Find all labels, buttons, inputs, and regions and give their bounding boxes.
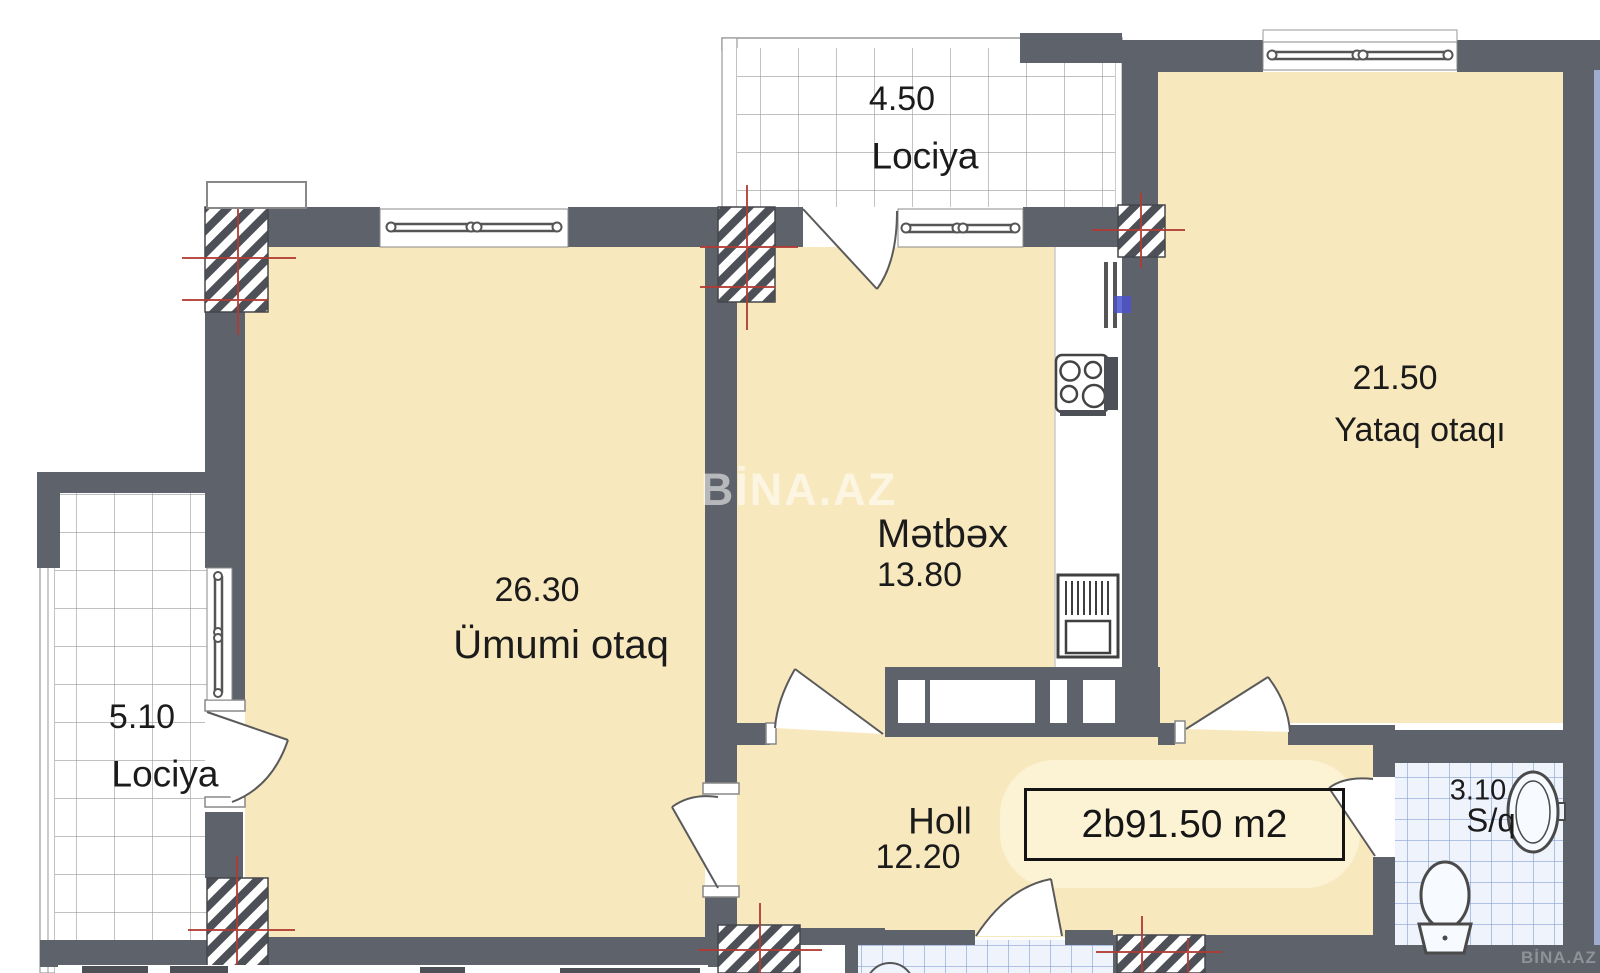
room-area-holl: 12.20 [875, 840, 960, 874]
room-area-umumi-otaq: 26.30 [494, 573, 579, 607]
right-edge-strip [1594, 70, 1600, 945]
total-area-label: 2b91.50 m2 [1082, 803, 1288, 847]
balcony-window-icon [207, 568, 232, 700]
room-name-holl: Holl [908, 803, 972, 840]
total-area-box: 2b91.50 m2 [1024, 788, 1345, 861]
stove-icon [1056, 355, 1118, 416]
kitchen-window-icon [898, 209, 1023, 247]
room-name-lociya-top: Lociya [872, 138, 979, 175]
lower-floor-fragment [58, 965, 708, 973]
room-area-yataq-otaqi: 21.50 [1352, 361, 1437, 395]
watermark-center: BİNA.AZ [701, 464, 897, 516]
room-name-umumi-otaq: Ümumi otaq [453, 625, 669, 665]
watermark-corner: BİNA.AZ [1521, 948, 1597, 968]
bedroom-window-icon [1263, 30, 1457, 70]
upper-structure-outline [207, 182, 306, 208]
kitchen-sink-icon [1058, 575, 1118, 657]
wall-mark-blue [1114, 296, 1131, 313]
room-name-yataq-otaqi: Yataq otaqı [1334, 413, 1505, 447]
room-name-lociya-left: Lociya [112, 756, 219, 793]
room-area-lociya-left: 5.10 [109, 700, 175, 734]
room-area-metbex: 13.80 [877, 558, 962, 592]
toilet-icon [1419, 862, 1471, 953]
room-name-sq: S/q [1466, 804, 1516, 837]
living-room-window-icon [380, 209, 568, 247]
room-name-metbex: Mətbəx [877, 514, 1008, 554]
floor-plan: 4.50 Lociya 21.50 Yataq otaqı Mətbəx 13.… [0, 0, 1600, 973]
room-area-lociya-top: 4.50 [869, 82, 935, 116]
